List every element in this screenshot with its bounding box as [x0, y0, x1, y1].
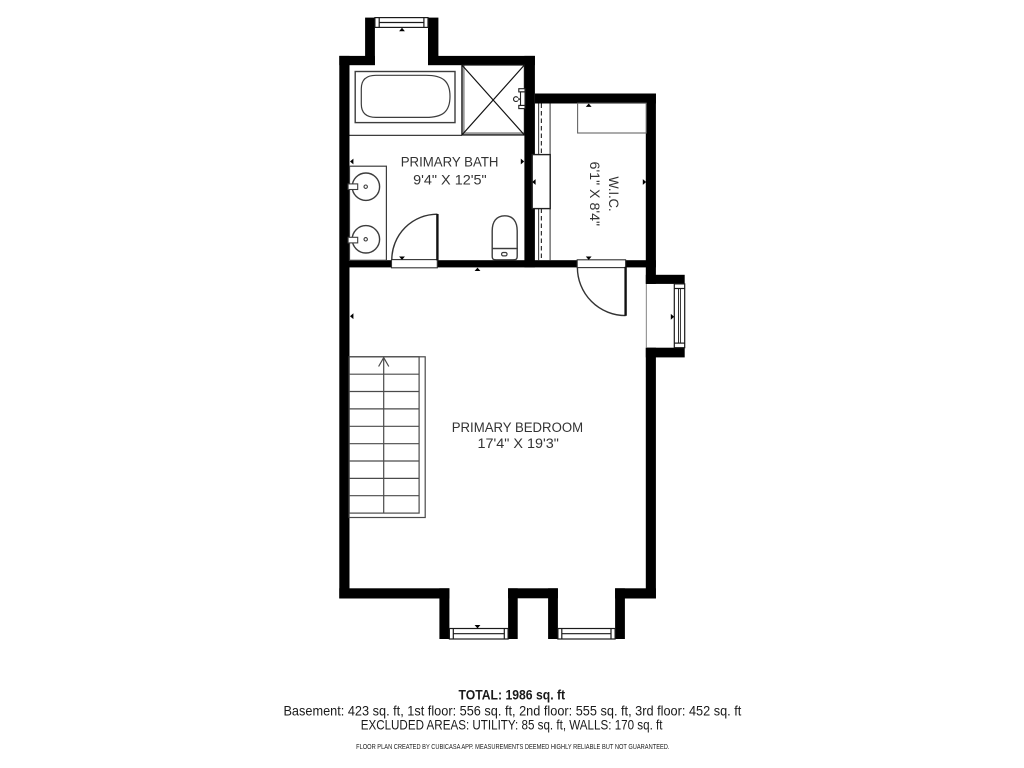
svg-text:17'4" X 19'3": 17'4" X 19'3" — [478, 436, 560, 451]
svg-text:PRIMARY BEDROOM: PRIMARY BEDROOM — [452, 420, 583, 435]
svg-text:W.I.C.: W.I.C. — [606, 176, 622, 211]
svg-text:9'4" X 12'5": 9'4" X 12'5" — [413, 171, 487, 187]
svg-text:TOTAL: 1986 sq. ft: TOTAL: 1986 sq. ft — [459, 686, 566, 702]
svg-text:PRIMARY BATH: PRIMARY BATH — [401, 153, 499, 169]
svg-text:FLOOR PLAN CREATED BY CUBICASA: FLOOR PLAN CREATED BY CUBICASA APP. MEAS… — [356, 742, 669, 751]
svg-text:EXCLUDED AREAS: UTILITY: 85 sq: EXCLUDED AREAS: UTILITY: 85 sq. ft, WALL… — [361, 717, 663, 733]
svg-text:6'1" X 8'4": 6'1" X 8'4" — [587, 162, 603, 227]
